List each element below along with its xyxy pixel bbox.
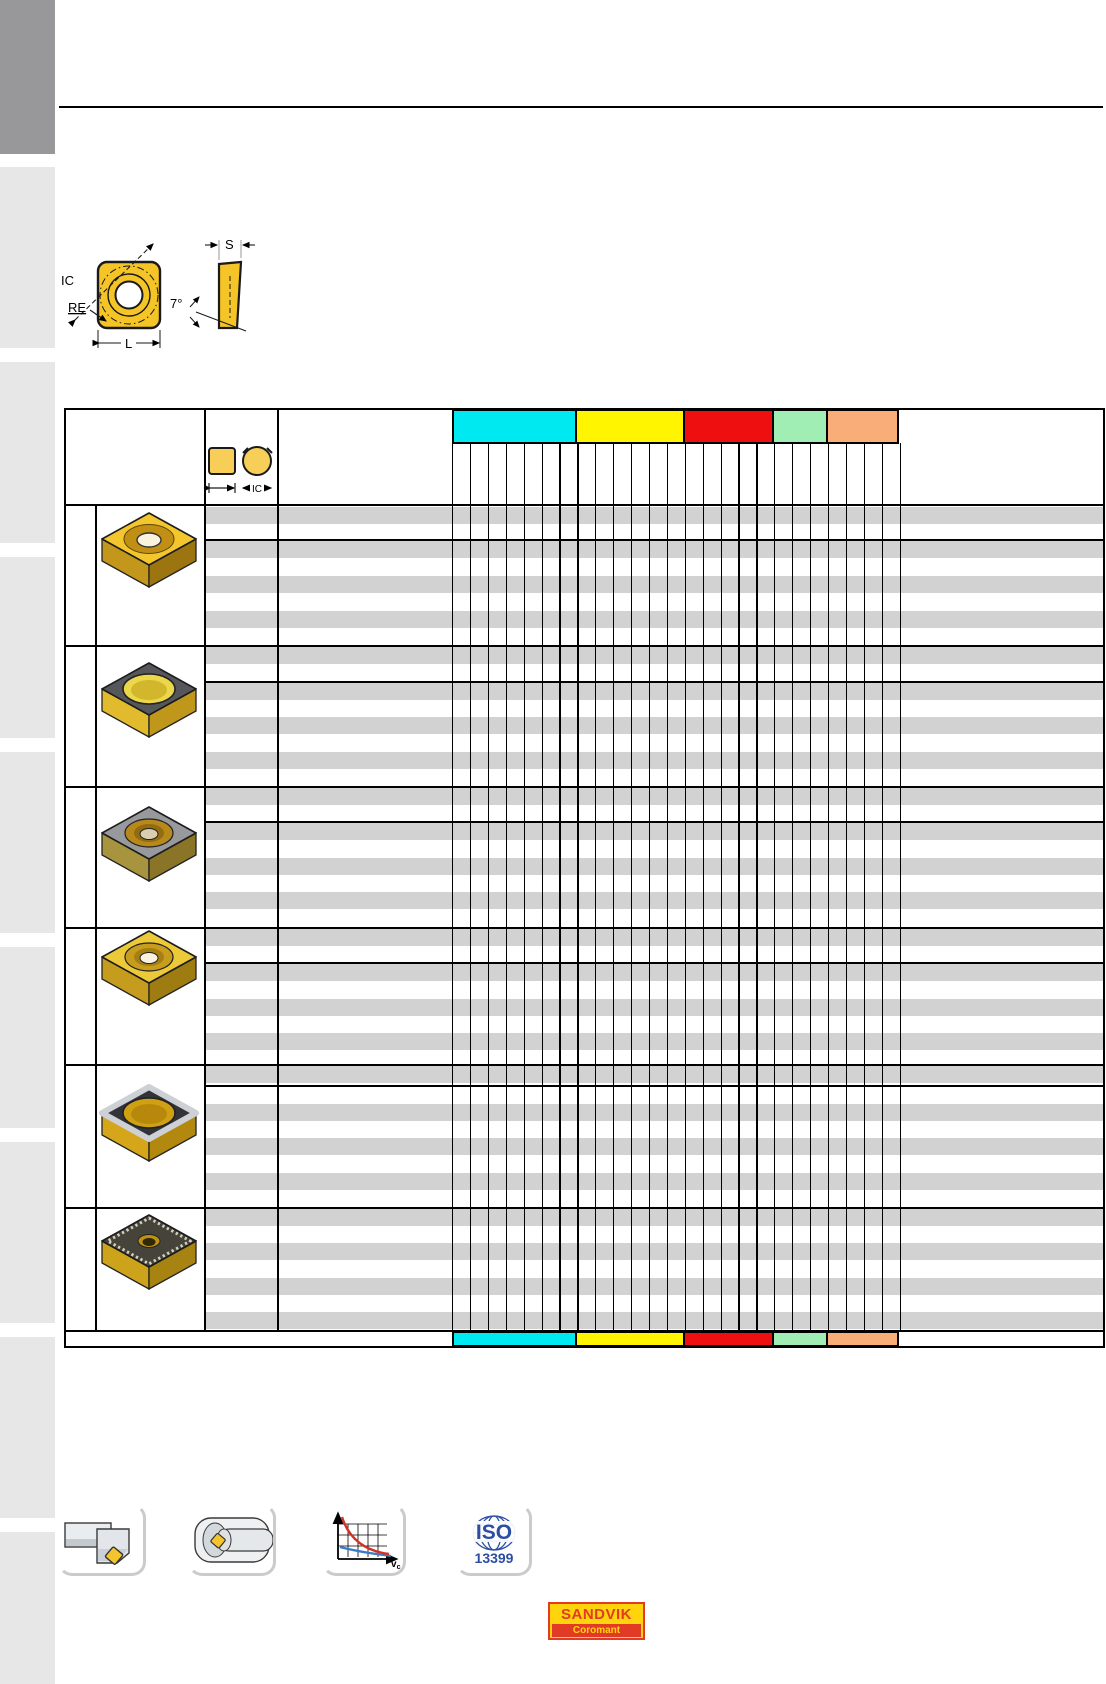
- inscribed-circle-icon: [243, 447, 271, 475]
- table-row-stripe: [204, 823, 1103, 840]
- grade-column-line: [452, 443, 453, 1332]
- table-h-line: [64, 1064, 1105, 1066]
- table-row-stripe: [204, 752, 1103, 769]
- grade-column-line: [721, 443, 722, 1332]
- table-row-stripe: [204, 858, 1103, 875]
- table-row-stripe: [204, 1312, 1103, 1329]
- insert-photo-3: [97, 802, 201, 898]
- table-row-stripe: [204, 683, 1103, 700]
- iso-text: ISO: [476, 1521, 512, 1544]
- table-row-stripe: [204, 999, 1103, 1016]
- grade-column-line: [470, 443, 471, 1332]
- external-turning-icon: [61, 1509, 143, 1571]
- material-band-top-iso-n: [774, 409, 828, 444]
- grade-column-line: [524, 443, 525, 1332]
- insert-shape-icons: IC: [206, 445, 276, 503]
- insert-photo-2: [97, 658, 201, 754]
- table-h-line: [64, 927, 1105, 929]
- table-row-stripe: [204, 964, 1103, 981]
- inserts-table: [0, 0, 1106, 1684]
- table-row-stripe: [204, 1173, 1103, 1190]
- table-row-stripe: [204, 1066, 1103, 1083]
- table-h-subline: [204, 821, 1103, 823]
- grade-column-line: [738, 443, 739, 1332]
- grade-column-line: [756, 443, 757, 1332]
- logo-brand-text: SANDVIK: [550, 1604, 643, 1624]
- insert-photo-6: [97, 1210, 201, 1306]
- grade-column-line: [685, 443, 686, 1332]
- grade-column-line: [506, 443, 507, 1332]
- material-band-top-iso-k: [685, 409, 775, 444]
- material-band-top-iso-m: [577, 409, 684, 444]
- table-row-stripe: [204, 541, 1103, 558]
- grade-column-line: [882, 443, 883, 1332]
- catalog-page: IC RE L S 7°: [0, 0, 1106, 1684]
- table-row-stripe: [204, 507, 1103, 524]
- table-h-subline: [204, 1085, 1103, 1087]
- grade-column-line: [828, 443, 829, 1332]
- material-band-bottom-iso-m: [577, 1331, 684, 1347]
- table-h-subline: [204, 681, 1103, 683]
- material-band-bottom-iso-n: [774, 1331, 828, 1347]
- table-row-stripe: [204, 1104, 1103, 1121]
- grade-column-line: [900, 443, 901, 1332]
- grade-column-line: [864, 443, 865, 1332]
- table-row-stripe: [204, 576, 1103, 593]
- table-row-stripe: [204, 1138, 1103, 1155]
- table-h-subline: [204, 539, 1103, 541]
- grade-column-line: [810, 443, 811, 1332]
- grade-column-line: [542, 443, 543, 1332]
- logo-sub-text: Coromant: [552, 1624, 641, 1637]
- grade-column-line: [595, 443, 596, 1332]
- square-insert-icon: [209, 448, 235, 474]
- grade-column-line: [577, 443, 578, 1332]
- table-row-stripe: [204, 1033, 1103, 1050]
- table-h-line: [64, 504, 1105, 506]
- table-h-line: [64, 645, 1105, 647]
- material-band-top-iso-s: [828, 409, 900, 444]
- vc-label: vc: [391, 1559, 401, 1571]
- card-iso-13399: ISO 13399: [456, 1504, 532, 1576]
- table-v-line: [277, 408, 279, 1330]
- iso-number: 13399: [475, 1550, 514, 1566]
- grade-column-line: [488, 443, 489, 1332]
- internal-turning-icon: [191, 1509, 273, 1571]
- grade-column-line: [631, 443, 632, 1332]
- table-row-stripe: [204, 1278, 1103, 1295]
- material-band-top-iso-p: [452, 409, 577, 444]
- material-band-bottom-iso-s: [828, 1331, 900, 1347]
- insert-photo-1: [97, 508, 201, 604]
- card-internal-turning: [188, 1504, 276, 1576]
- grade-column-line: [774, 443, 775, 1332]
- grade-column-line: [792, 443, 793, 1332]
- table-row-stripe: [204, 647, 1103, 664]
- insert-photo-5: [97, 1082, 201, 1178]
- table-row-stripe: [204, 1243, 1103, 1260]
- grade-column-line: [667, 443, 668, 1332]
- grade-column-line: [559, 443, 560, 1332]
- sandvik-coromant-logo: SANDVIK Coromant: [548, 1602, 645, 1640]
- table-row-stripe: [204, 1209, 1103, 1226]
- table-h-subline: [204, 962, 1103, 964]
- table-row-stripe: [204, 929, 1103, 946]
- grade-column-line: [846, 443, 847, 1332]
- table-h-line: [64, 786, 1105, 788]
- card-external-turning: [58, 1504, 146, 1576]
- insert-photo-4: [97, 926, 201, 1022]
- table-row-stripe: [204, 611, 1103, 628]
- material-band-bottom-iso-p: [452, 1331, 577, 1347]
- table-h-line: [64, 1207, 1105, 1209]
- iso-13399-logo: ISO 13399: [459, 1509, 529, 1571]
- grade-column-line: [703, 443, 704, 1332]
- table-row-stripe: [204, 788, 1103, 805]
- ic-arrow-label: IC: [252, 484, 262, 495]
- material-band-bottom-iso-k: [685, 1331, 775, 1347]
- table-row-stripe: [204, 717, 1103, 734]
- grade-column-line: [649, 443, 650, 1332]
- cutting-data-chart-icon: vc: [325, 1509, 405, 1571]
- table-v-line: [204, 408, 206, 1330]
- grade-column-line: [613, 443, 614, 1332]
- table-row-stripe: [204, 892, 1103, 909]
- card-cutting-data: vc: [322, 1504, 406, 1576]
